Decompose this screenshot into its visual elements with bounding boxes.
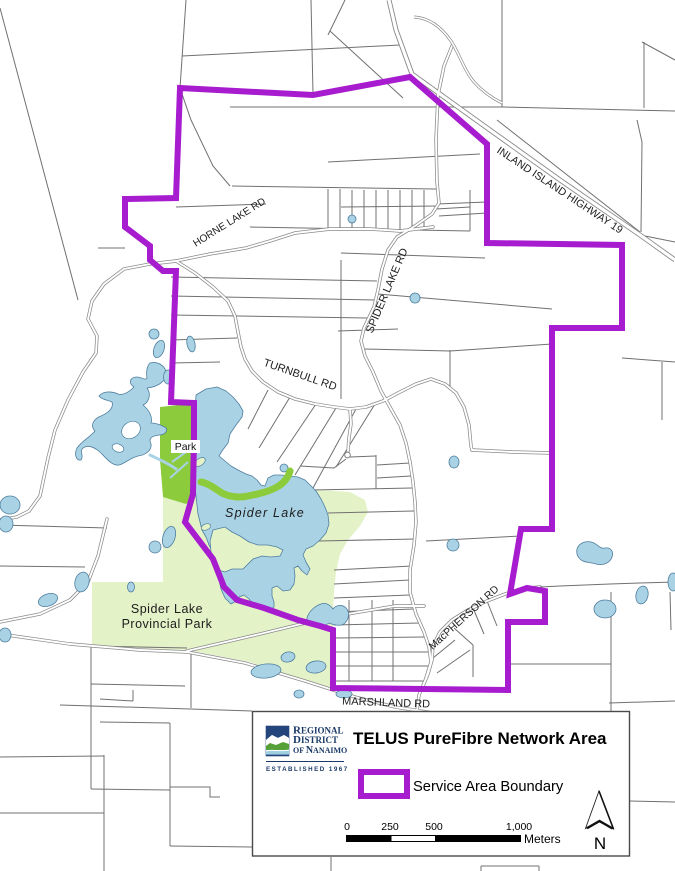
svg-text:Spider Lake: Spider Lake	[131, 602, 203, 616]
svg-text:Provincial Park: Provincial Park	[122, 617, 213, 631]
svg-text:Meters: Meters	[524, 832, 561, 846]
svg-text:0: 0	[344, 821, 350, 833]
svg-text:OF NANAIMO: OF NANAIMO	[293, 745, 347, 756]
svg-text:Spider Lake: Spider Lake	[225, 506, 305, 520]
svg-text:DISTRICT: DISTRICT	[293, 734, 338, 746]
svg-text:TELUS PureFibre Network Area: TELUS PureFibre Network Area	[353, 729, 607, 748]
svg-text:500: 500	[425, 821, 443, 833]
svg-text:ESTABLISHED 1967: ESTABLISHED 1967	[266, 766, 349, 773]
svg-text:Park: Park	[175, 441, 197, 453]
svg-text:Service Area Boundary: Service Area Boundary	[413, 779, 564, 795]
svg-text:250: 250	[381, 821, 399, 833]
svg-text:N: N	[594, 834, 606, 853]
